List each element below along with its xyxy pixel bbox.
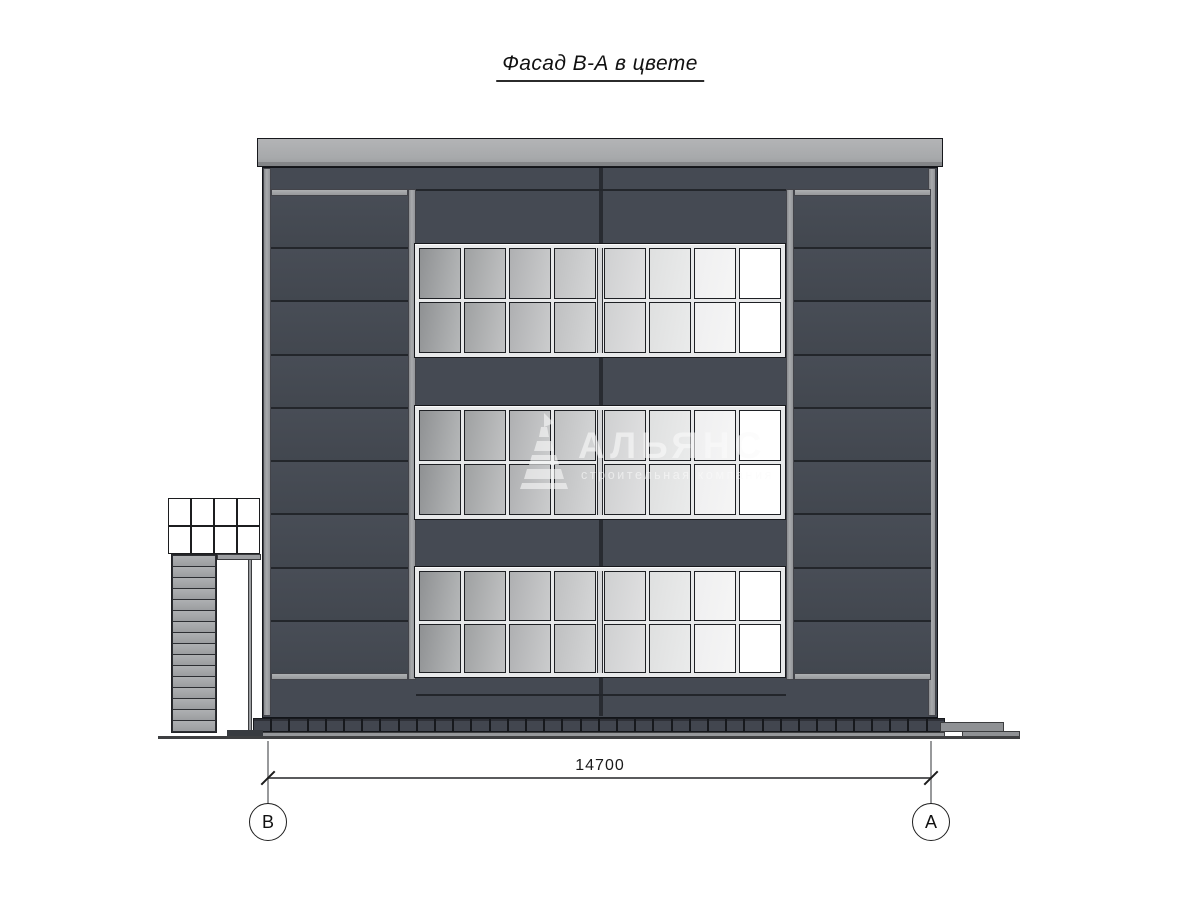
trim-strip-top-right xyxy=(794,189,931,196)
window-pane xyxy=(604,571,646,621)
window-pane xyxy=(554,571,596,621)
annex-stripe xyxy=(173,721,215,731)
plinth-tile xyxy=(327,719,343,731)
plinth-tile xyxy=(491,719,507,731)
drawing-title: Фасад В-А в цвете xyxy=(496,52,704,82)
window-pane xyxy=(554,248,596,299)
window-band-grid xyxy=(604,410,781,515)
plinth-tile xyxy=(309,719,325,731)
window-pane xyxy=(554,410,596,461)
window-pane xyxy=(604,410,646,461)
window-pane xyxy=(649,464,691,515)
window-band-center-mullion xyxy=(597,248,603,353)
facade-panel xyxy=(271,569,408,622)
window-pane xyxy=(649,410,691,461)
window-pane xyxy=(604,464,646,515)
window-band-grid xyxy=(419,248,596,353)
annex-stripe xyxy=(173,600,215,610)
window-pane xyxy=(509,248,551,299)
annex-glazing-cell xyxy=(192,527,213,553)
window-pane xyxy=(739,464,781,515)
window-pane xyxy=(649,571,691,621)
plinth-tile xyxy=(545,719,561,731)
plinth-tile xyxy=(563,719,579,731)
axis-marker-a-label: А xyxy=(925,812,937,833)
window-pane xyxy=(694,410,736,461)
axis-marker-b: В xyxy=(249,803,287,841)
window-pane xyxy=(739,571,781,621)
facade-drawing-canvas: Фасад В-А в цвете АЛЬЯНС строи xyxy=(0,0,1200,900)
facade-panel xyxy=(794,515,931,568)
facade-panel xyxy=(794,196,931,249)
window-pane xyxy=(604,248,646,299)
facade-panel xyxy=(794,569,931,622)
window-pane xyxy=(694,571,736,621)
plinth-tile xyxy=(618,719,634,731)
facade-top-seam xyxy=(416,189,786,191)
annex-stripe xyxy=(173,567,215,577)
annex-glazing-cell xyxy=(238,499,259,525)
annex-glazing-cell xyxy=(169,499,190,525)
plinth-tile xyxy=(818,719,834,731)
window-pane xyxy=(509,571,551,621)
plinth-tile xyxy=(436,719,452,731)
plinth-tile xyxy=(400,719,416,731)
window-pane xyxy=(509,410,551,461)
panel-column-right xyxy=(794,196,931,673)
annex-stripe xyxy=(173,666,215,676)
plinth-tile xyxy=(472,719,488,731)
window-pane xyxy=(694,248,736,299)
trim-strip-top-left xyxy=(271,189,408,196)
window-pane xyxy=(554,302,596,353)
window-band xyxy=(414,243,786,358)
plinth-tile xyxy=(363,719,379,731)
plinth-tile xyxy=(654,719,670,731)
annex-glazing-cell xyxy=(238,527,259,553)
facade-panel xyxy=(794,462,931,515)
window-pane xyxy=(739,624,781,674)
window-pane xyxy=(419,464,461,515)
window-pane xyxy=(464,464,506,515)
window-pane xyxy=(694,464,736,515)
facade-panel xyxy=(271,356,408,409)
window-pane xyxy=(554,624,596,674)
annex-door-frame xyxy=(248,560,252,732)
window-band-grid xyxy=(419,571,596,673)
window-pane xyxy=(464,302,506,353)
annex-stripe xyxy=(173,655,215,665)
facade-panel xyxy=(271,302,408,355)
window-pane xyxy=(419,624,461,674)
axis-marker-a: А xyxy=(912,803,950,841)
annex-glazing-cell xyxy=(192,499,213,525)
building-cornice xyxy=(257,138,943,167)
dimension-value: 14700 xyxy=(0,757,1200,775)
annex-glazing-cell xyxy=(215,527,236,553)
window-band-grid xyxy=(419,410,596,515)
window-pane xyxy=(464,571,506,621)
facade-panel xyxy=(271,249,408,302)
plinth-tile xyxy=(636,719,652,731)
annex-stripe xyxy=(173,677,215,687)
window-pane xyxy=(464,248,506,299)
trim-strip-bottom-right xyxy=(794,673,931,680)
dimension-line xyxy=(268,777,931,779)
window-pane xyxy=(509,464,551,515)
facade-panel xyxy=(794,302,931,355)
window-band-center-mullion xyxy=(597,571,603,673)
facade-panel xyxy=(271,462,408,515)
plinth-tile xyxy=(891,719,907,731)
window-pane xyxy=(464,624,506,674)
annex-stripe xyxy=(173,633,215,643)
plinth-tile xyxy=(691,719,707,731)
annex-stripe xyxy=(173,710,215,720)
plinth-tile xyxy=(272,719,288,731)
window-pane xyxy=(739,410,781,461)
plinth-tile xyxy=(800,719,816,731)
window-band xyxy=(414,405,786,520)
window-pane xyxy=(554,464,596,515)
annex-stripe xyxy=(173,644,215,654)
trim-strip-bottom-left xyxy=(271,673,408,680)
window-pane xyxy=(739,248,781,299)
facade-panel xyxy=(794,622,931,673)
plinth-tile xyxy=(345,719,361,731)
window-pane xyxy=(419,571,461,621)
facade-panel xyxy=(794,249,931,302)
annex-door-header xyxy=(217,554,261,560)
window-pane xyxy=(649,248,691,299)
annex-stair-stripes xyxy=(171,554,217,733)
window-pane xyxy=(694,624,736,674)
facade-panel xyxy=(271,515,408,568)
plinth-tile xyxy=(418,719,434,731)
window-pane xyxy=(604,624,646,674)
annex-stripe xyxy=(173,589,215,599)
facade-bottom-seam xyxy=(416,694,786,696)
plinth-tile xyxy=(527,719,543,731)
plinth-tile xyxy=(764,719,780,731)
annex-glazing-cell xyxy=(169,527,190,553)
trim-strip-vertical-right xyxy=(786,189,794,680)
plinth-tile xyxy=(855,719,871,731)
facade-panel xyxy=(271,409,408,462)
window-pane xyxy=(649,624,691,674)
annex-stripe xyxy=(173,699,215,709)
window-pane xyxy=(509,624,551,674)
window-pane xyxy=(419,410,461,461)
window-pane xyxy=(649,302,691,353)
window-pane xyxy=(694,302,736,353)
ground-line xyxy=(158,736,1020,739)
plinth-tile xyxy=(709,719,725,731)
facade-panel xyxy=(271,196,408,249)
plinth-tile xyxy=(509,719,525,731)
facade-panel xyxy=(794,409,931,462)
pilaster-left xyxy=(263,168,271,716)
annex-glazing-cell xyxy=(215,499,236,525)
plinth-tile xyxy=(727,719,743,731)
window-pane xyxy=(419,302,461,353)
plinth-tile xyxy=(873,719,889,731)
facade-panel xyxy=(794,356,931,409)
plinth-tile xyxy=(673,719,689,731)
plinth-tile xyxy=(454,719,470,731)
plinth-tile xyxy=(582,719,598,731)
annex-stripe xyxy=(173,688,215,698)
window-band-center-mullion xyxy=(597,410,603,515)
plinth-tile xyxy=(909,719,925,731)
plinth-tile xyxy=(381,719,397,731)
window-pane xyxy=(509,302,551,353)
annex-glazing-grid xyxy=(168,498,260,554)
panel-column-left xyxy=(271,196,408,673)
plinth-tile xyxy=(837,719,853,731)
annex-stripe xyxy=(173,622,215,632)
facade-panel xyxy=(271,622,408,673)
plinth-tile xyxy=(782,719,798,731)
plinth-tile xyxy=(600,719,616,731)
window-band-grid xyxy=(604,571,781,673)
annex-stripe xyxy=(173,611,215,621)
plinth-tile xyxy=(745,719,761,731)
window-pane xyxy=(419,248,461,299)
window-band xyxy=(414,566,786,678)
plinth-tile xyxy=(290,719,306,731)
window-pane xyxy=(604,302,646,353)
window-pane xyxy=(739,302,781,353)
window-pane xyxy=(464,410,506,461)
annex-stripe xyxy=(173,578,215,588)
plinth-tiles xyxy=(253,718,945,732)
window-band-grid xyxy=(604,248,781,353)
annex-stripe xyxy=(173,556,215,566)
axis-marker-b-label: В xyxy=(262,812,274,833)
